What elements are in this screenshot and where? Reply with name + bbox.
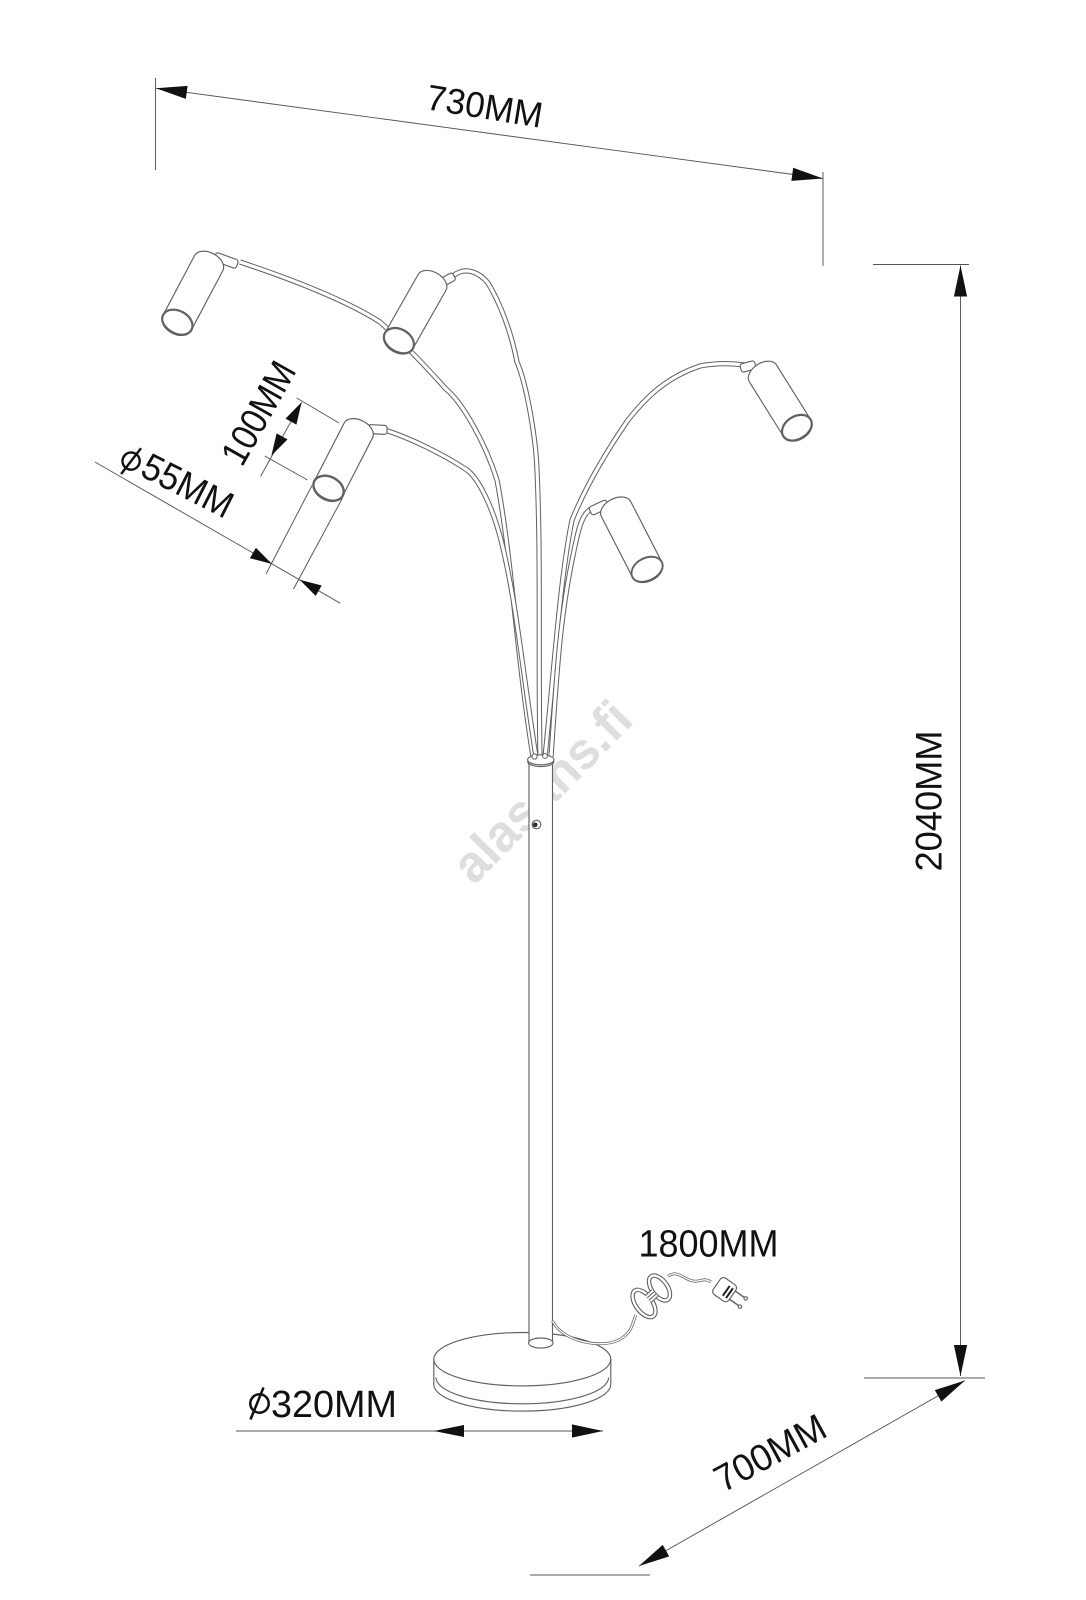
svg-text:1800MM: 1800MM bbox=[639, 1224, 779, 1266]
svg-text:320MM: 320MM bbox=[271, 1384, 397, 1426]
svg-text:2040MM: 2040MM bbox=[908, 731, 950, 872]
